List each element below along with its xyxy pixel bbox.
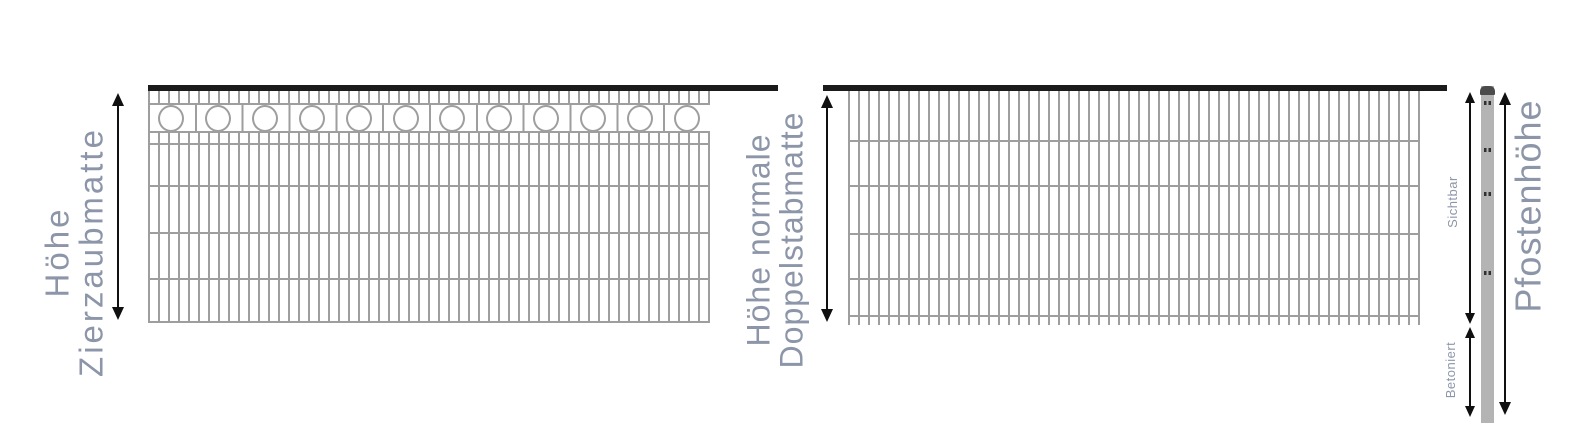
arrow-down-icon — [1499, 402, 1511, 415]
post-clamp-icon — [1484, 192, 1491, 196]
ring-ornament-icon — [580, 105, 606, 132]
mesh-stub-band — [148, 133, 710, 143]
fence-post-cap — [1480, 86, 1495, 95]
standard-mat-height-label-line1: Höhe normale — [743, 112, 776, 369]
decorative-mat-height-label-line1: Höhe — [41, 127, 75, 377]
ring-ornament-icon — [252, 105, 278, 132]
ring-ornament-icon — [439, 105, 465, 132]
mesh-bottom-rail — [148, 321, 710, 323]
mesh-rail — [848, 278, 1420, 280]
ring-ornament-icon — [393, 105, 419, 132]
standard-fence-mesh — [848, 91, 1420, 317]
decorative-mat-height-arrow-icon — [112, 93, 124, 320]
post-concreted-label: Betoniert — [1444, 342, 1458, 399]
arrow-shaft — [1469, 337, 1472, 407]
mesh-stub-band — [148, 91, 710, 103]
decorative-fence-mesh — [148, 91, 710, 323]
post-height-label: Pfostenhöhe — [1509, 99, 1546, 312]
fence-post — [1481, 86, 1494, 423]
ring-ornament-icon — [627, 105, 653, 132]
mesh-bars — [848, 91, 1420, 315]
arrow-down-icon — [1465, 406, 1475, 417]
ring-ornament-icon — [158, 105, 184, 132]
ring-ornament-icon — [674, 105, 700, 132]
ring-ornament-icon — [486, 105, 512, 132]
standard-mat-height-label-line2: Doppelstabmatte — [776, 112, 809, 369]
post-visible-arrow-icon — [1465, 92, 1475, 324]
arrow-down-icon — [112, 307, 124, 320]
fence-post-body — [1481, 86, 1494, 423]
mesh-rail — [148, 185, 710, 187]
mesh-rail — [848, 233, 1420, 235]
decorative-mat-height-label-line2: Zierzaubmatte — [75, 127, 109, 377]
arrow-shaft — [1504, 102, 1507, 405]
mesh-rail — [148, 232, 710, 234]
mesh-rail — [848, 140, 1420, 142]
ring-ornament-icon — [299, 105, 325, 132]
mesh-rail — [848, 185, 1420, 187]
ring-ornament-icon — [346, 105, 372, 132]
decorative-mat-height-label: Höhe Zierzaubmatte — [41, 127, 110, 377]
standard-mat-height-label: Höhe normale Doppelstabmatte — [743, 112, 810, 369]
ring-ornament-icon — [205, 105, 231, 132]
fence-height-diagram: { "diagram_title": "Fence mat and post h… — [0, 0, 1587, 425]
post-visible-label: Sichtbar — [1446, 176, 1460, 228]
mesh-rail — [148, 278, 710, 280]
post-clamp-icon — [1484, 101, 1491, 105]
arrow-down-icon — [1465, 313, 1475, 324]
post-clamp-icon — [1484, 271, 1491, 275]
ornament-rings-row — [148, 105, 710, 131]
post-clamp-icon — [1484, 148, 1491, 152]
standard-fence-panel — [823, 85, 1447, 325]
arrow-shaft — [1469, 102, 1472, 314]
mesh-bottom-stubs — [848, 317, 1420, 325]
arrow-shaft — [117, 103, 120, 310]
ring-ornament-icon — [533, 105, 559, 132]
decorative-fence-panel — [148, 85, 778, 323]
post-concreted-arrow-icon — [1465, 327, 1475, 417]
